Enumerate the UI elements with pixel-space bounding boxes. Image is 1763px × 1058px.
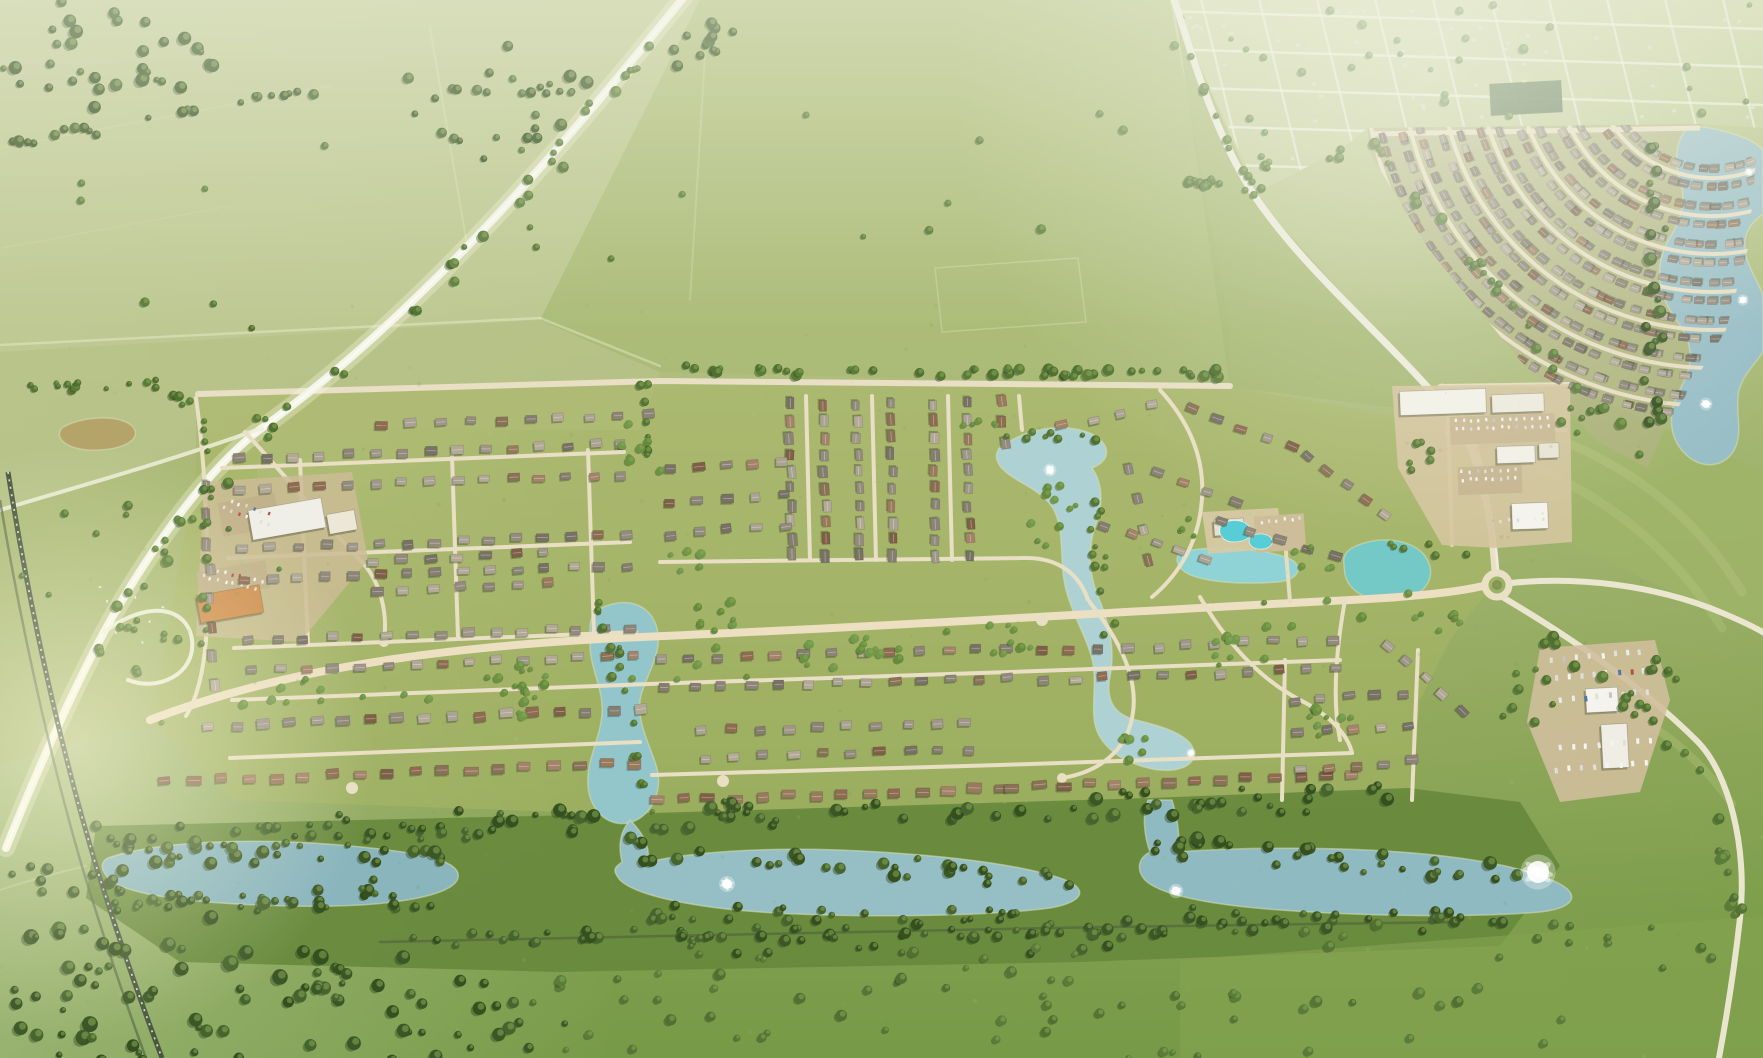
aerial-photograph bbox=[0, 0, 1763, 1058]
aerial-photo-master-planned-community bbox=[0, 0, 1763, 1058]
top-atmospheric-haze bbox=[0, 0, 1763, 330]
